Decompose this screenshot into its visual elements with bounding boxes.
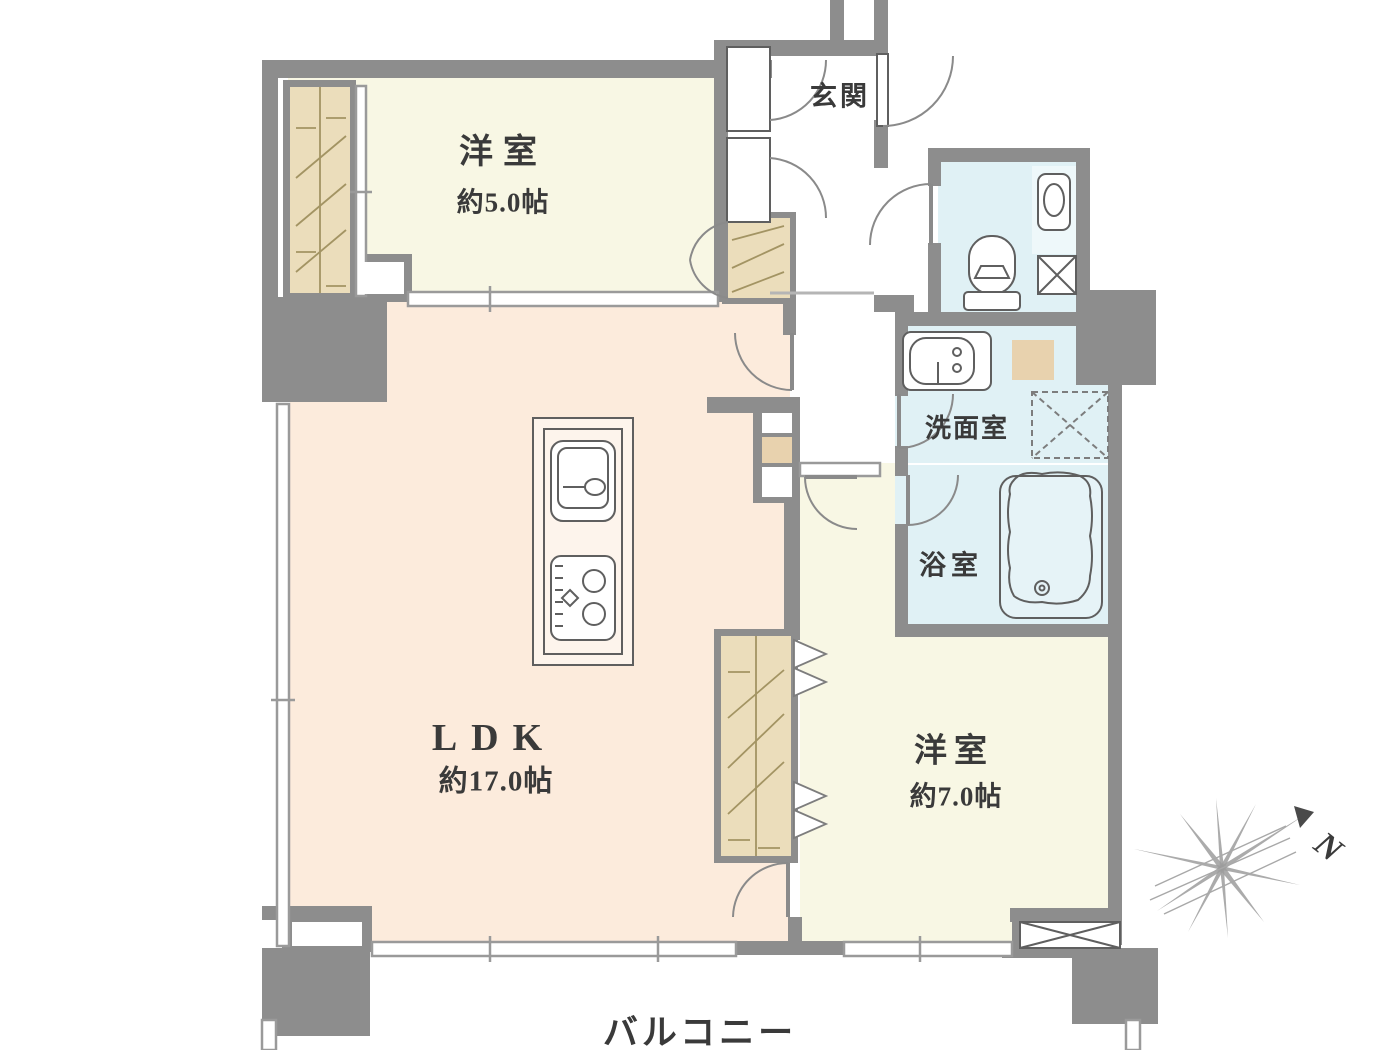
balcony-rail-right (1126, 1020, 1140, 1050)
ldk-side-window (277, 404, 289, 946)
toilet-sink-icon (1032, 166, 1076, 254)
bathroom-label: 浴室 (919, 553, 983, 580)
compass-arrowhead (1294, 806, 1314, 828)
entrance-door-leaf (877, 54, 888, 126)
entrance-door-arc (883, 56, 953, 126)
washroom-counter (1012, 340, 1054, 380)
kitchen-island (533, 418, 633, 665)
sliding-partition (408, 292, 718, 306)
balcony-label: バルコニー (603, 1016, 797, 1050)
washroom-label: 洗面室 (925, 416, 1009, 442)
wall-niche (762, 467, 792, 497)
compass: N (1134, 798, 1350, 938)
wall-niche (762, 413, 792, 433)
shoe-cabinet (727, 138, 770, 222)
bedroom-large-label: 洋室 (914, 736, 994, 769)
wall-niche (360, 262, 404, 294)
bedroom-large-floor-strip (800, 463, 895, 945)
bedroom-balcony-window (844, 942, 1012, 956)
wall-niche-tan (762, 437, 792, 463)
toilet-door-arc (870, 184, 931, 245)
pipe-space-box (1020, 922, 1120, 948)
toilet-icon (964, 236, 1020, 310)
compass-needle-north (1157, 814, 1306, 911)
floorplan-drawing: N (0, 0, 1400, 1050)
closet-entrance (728, 218, 790, 298)
entrance-label: 玄関 (810, 84, 870, 111)
bedroom-large-area: 約7.0帖 (910, 784, 1003, 811)
bedroom-small-label: 洋室 (459, 136, 547, 170)
bedroom-threshold (800, 463, 880, 476)
wall-niche (292, 922, 362, 946)
compass-north-label: N (1306, 825, 1350, 871)
ldk-label: LDK (432, 719, 556, 757)
vanity-sink-icon (903, 332, 991, 390)
shoe-cabinet (727, 47, 770, 131)
ldk-area: 約17.0帖 (439, 768, 554, 797)
floorplan: N 洋室 約5.0帖 玄関 洗面室 浴室 LDK 約17.0帖 洋室 約7.0帖… (0, 0, 1400, 1050)
balcony-rail-left (262, 1020, 276, 1050)
room-floors (288, 78, 1108, 948)
bathtub-icon (1000, 472, 1102, 618)
pipe-space-box (1038, 256, 1076, 294)
ldk-balcony-window (372, 942, 736, 956)
shoe-cabinet-door-arc (770, 158, 826, 218)
bedroom-small-area: 約5.0帖 (457, 190, 550, 217)
